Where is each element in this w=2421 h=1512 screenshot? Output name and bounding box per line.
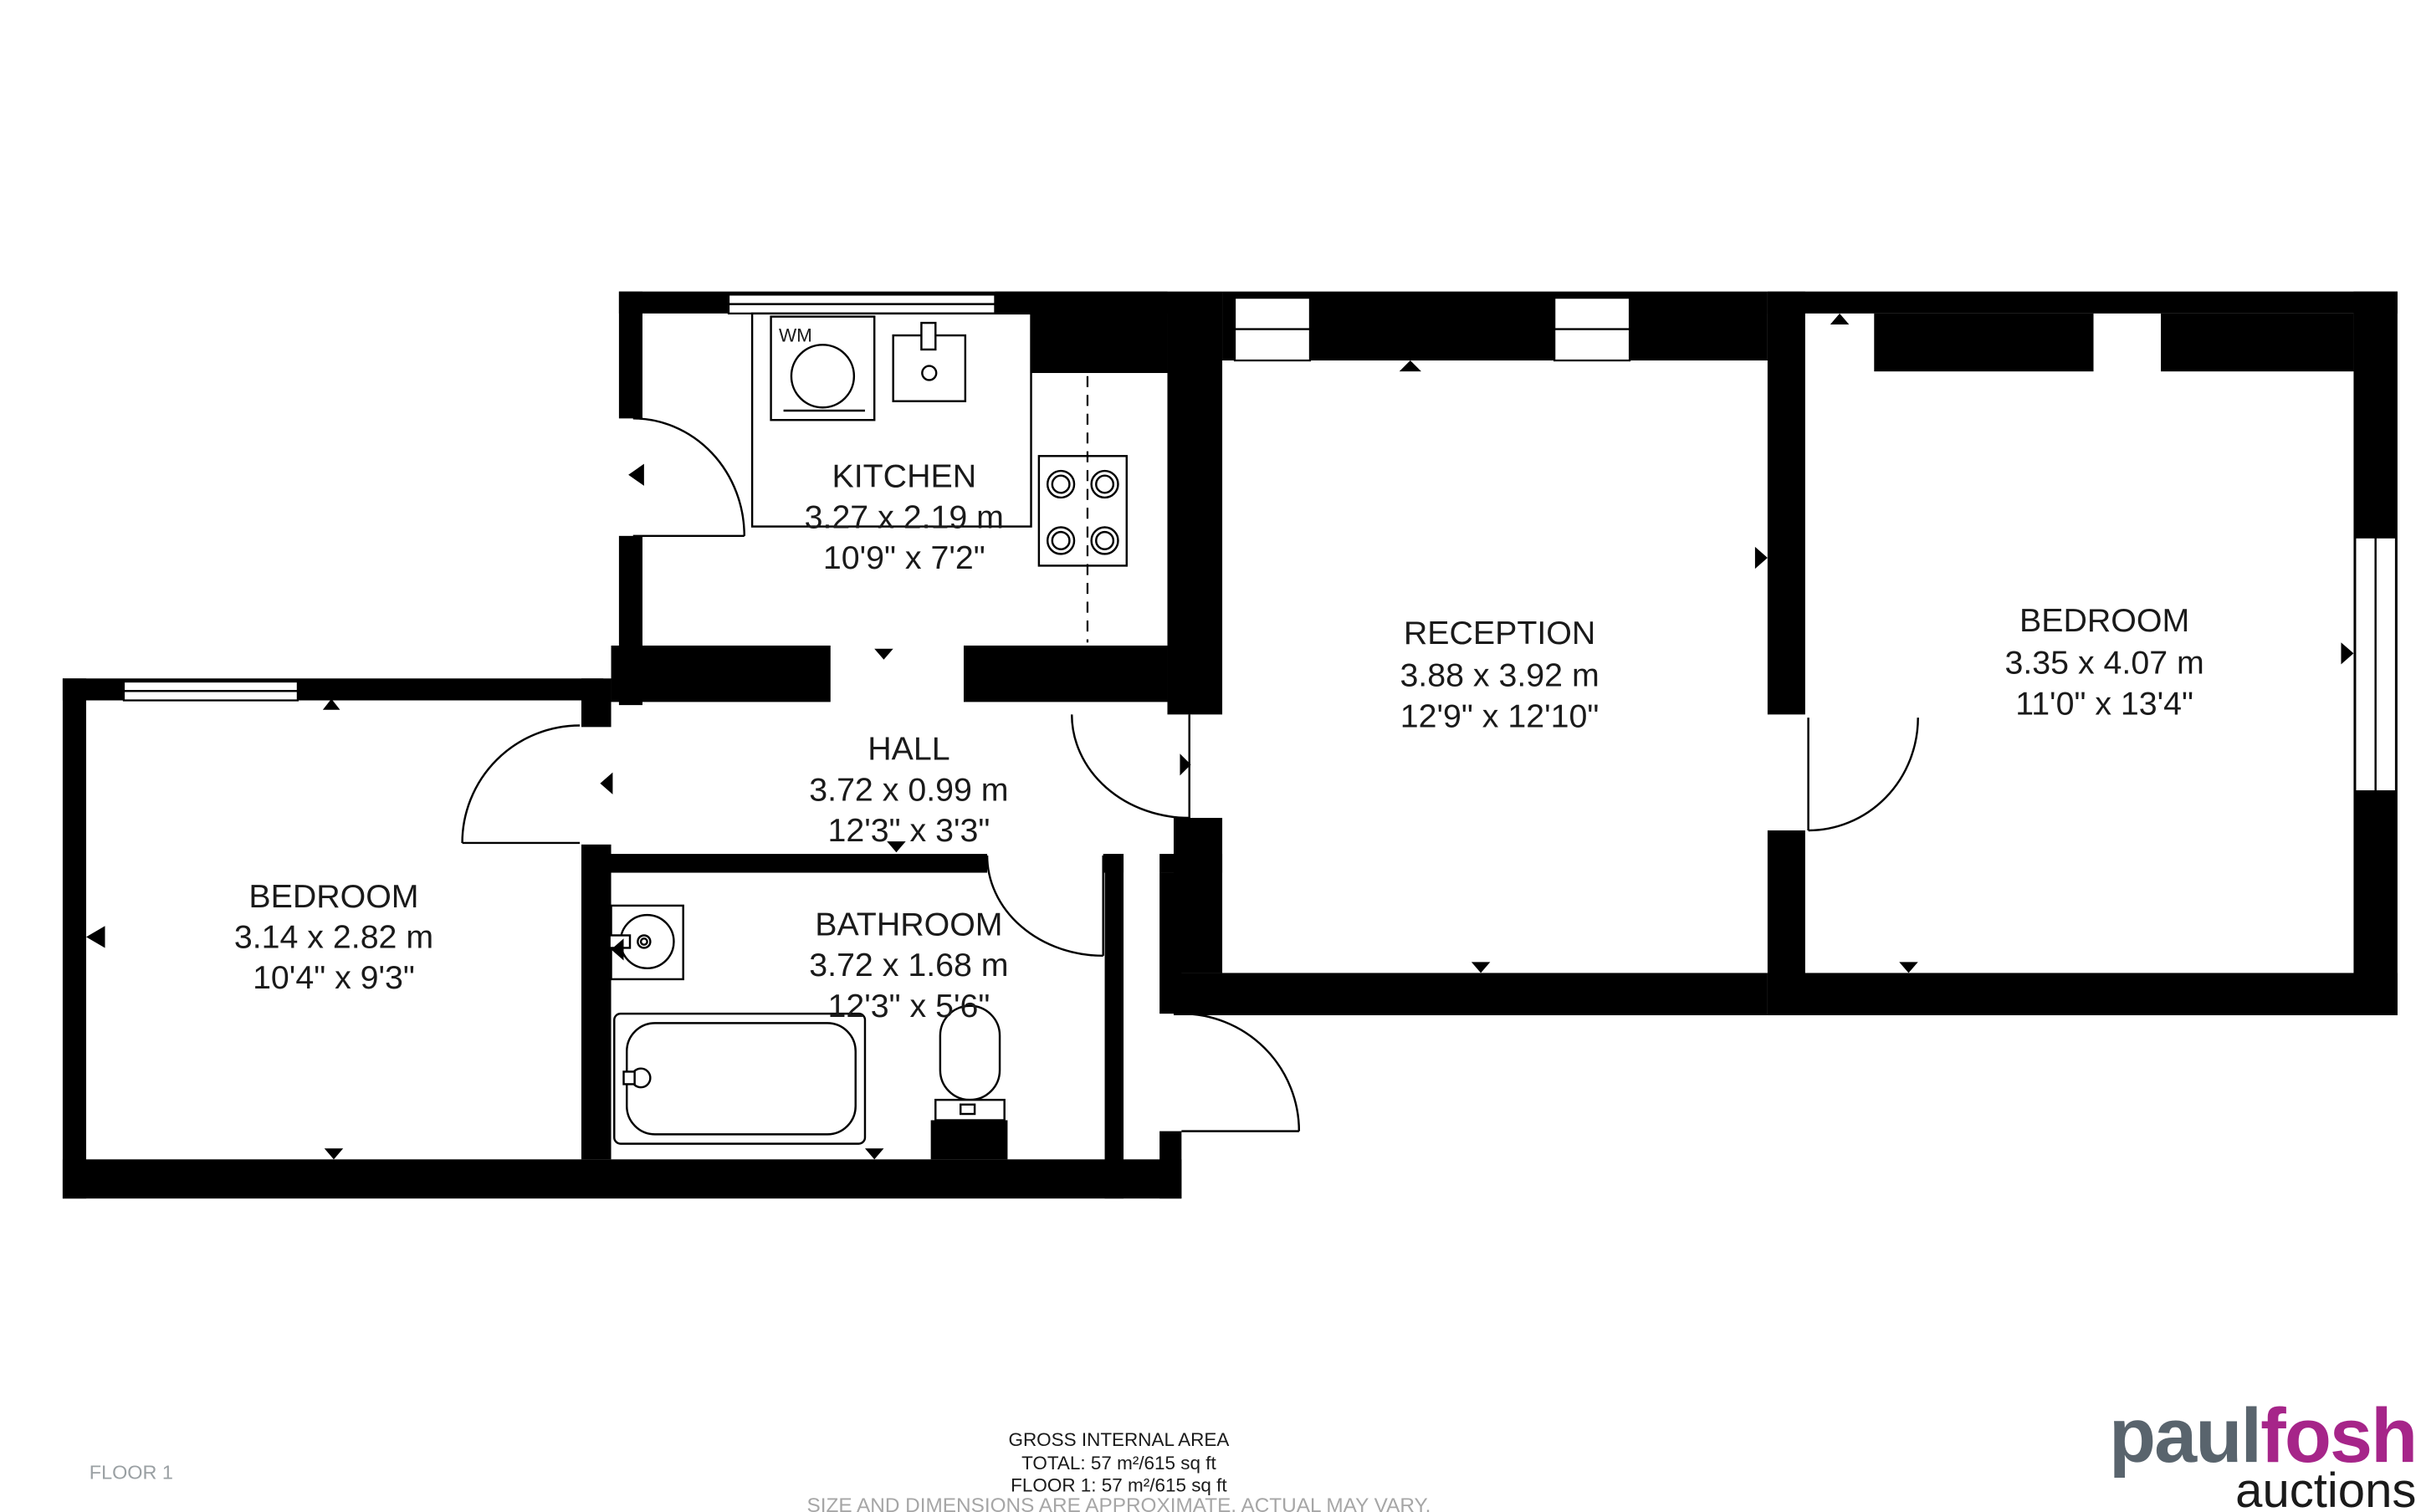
room-label-reception: RECEPTION 3.88 x 3.92 m 12'9" x 12'10" bbox=[1400, 615, 1599, 734]
arrow-left-icon bbox=[628, 464, 644, 486]
svg-text:3.72 x 1.68 m: 3.72 x 1.68 m bbox=[809, 947, 1008, 983]
bathroom-fixtures bbox=[610, 906, 1008, 1159]
svg-text:11'0" x 13'4": 11'0" x 13'4" bbox=[2015, 685, 2193, 722]
room-label-hall: HALL 3.72 x 0.99 m 12'3" x 3'3" bbox=[809, 731, 1008, 849]
arrow-right-icon bbox=[2341, 642, 2353, 664]
footer-area-summary: GROSS INTERNAL AREA TOTAL: 57 m²/615 sq … bbox=[806, 1429, 1431, 1512]
bathroom-door bbox=[987, 856, 1103, 956]
washing-machine: WM bbox=[771, 317, 875, 421]
svg-text:3.35 x 4.07 m: 3.35 x 4.07 m bbox=[2004, 645, 2203, 682]
entrance-door bbox=[1181, 1014, 1298, 1131]
reception-window-2 bbox=[1554, 298, 1630, 360]
svg-text:3.88 x 3.92 m: 3.88 x 3.92 m bbox=[1400, 657, 1599, 694]
room-label-bedroom-right: BEDROOM 3.35 x 4.07 m 11'0" x 13'4" bbox=[2004, 602, 2203, 722]
kitchen-door bbox=[633, 418, 745, 535]
arrow-left-icon bbox=[600, 773, 612, 794]
svg-text:BEDROOM: BEDROOM bbox=[2019, 602, 2189, 639]
room-label-bathroom: BATHROOM 3.72 x 1.68 m 12'3" x 5'6" bbox=[809, 906, 1008, 1024]
arrow-down-icon bbox=[865, 1148, 883, 1159]
svg-text:3.14 x 2.82 m: 3.14 x 2.82 m bbox=[234, 918, 433, 955]
arrow-down-icon bbox=[325, 1148, 343, 1159]
walls bbox=[63, 292, 2398, 1199]
arrow-left-icon bbox=[86, 926, 105, 948]
svg-text:BATHROOM: BATHROOM bbox=[815, 906, 1002, 942]
arrow-down-icon bbox=[874, 649, 893, 660]
floor-label: FLOOR 1 bbox=[90, 1461, 173, 1483]
bedroom-left-door bbox=[463, 725, 580, 842]
svg-text:10'9" x 7'2": 10'9" x 7'2" bbox=[823, 539, 985, 576]
floor-plan-svg: WM bbox=[0, 0, 2421, 1512]
arrow-up-icon bbox=[1400, 360, 1421, 371]
toilet bbox=[931, 1006, 1008, 1160]
bedroom-right-window bbox=[2355, 538, 2396, 791]
bathtub bbox=[614, 1014, 865, 1143]
arrow-down-icon bbox=[1472, 962, 1490, 973]
svg-text:HALL: HALL bbox=[868, 731, 949, 768]
room-label-bedroom-left: BEDROOM 3.14 x 2.82 m 10'4" x 9'3" bbox=[234, 878, 433, 996]
arrow-up-icon bbox=[1830, 314, 1849, 324]
hob bbox=[1039, 456, 1127, 565]
kitchen-sink bbox=[893, 323, 965, 401]
svg-text:BEDROOM: BEDROOM bbox=[248, 878, 418, 915]
bedroom-left-window bbox=[124, 682, 298, 700]
svg-text:RECEPTION: RECEPTION bbox=[1404, 615, 1595, 651]
logo-auctions: auctions bbox=[2235, 1463, 2416, 1512]
brand-logo: paulfosh auctions bbox=[2109, 1393, 2416, 1512]
disclaimer: SIZE AND DIMENSIONS ARE APPROXIMATE, ACT… bbox=[806, 1494, 1431, 1512]
arrow-down-icon bbox=[1899, 962, 1917, 973]
floorplan-page: WM bbox=[0, 0, 2421, 1512]
total-area: TOTAL: 57 m²/615 sq ft bbox=[1021, 1453, 1216, 1474]
kitchen-window bbox=[729, 294, 995, 313]
floor1-area: FLOOR 1: 57 m²/615 sq ft bbox=[1011, 1474, 1227, 1495]
svg-text:12'3" x 3'3": 12'3" x 3'3" bbox=[828, 812, 990, 849]
reception-window-1 bbox=[1235, 298, 1310, 360]
washing-machine-label: WM bbox=[779, 325, 812, 346]
svg-text:12'9" x 12'10": 12'9" x 12'10" bbox=[1400, 697, 1599, 734]
arrow-right-icon bbox=[1755, 547, 1768, 569]
svg-text:12'3" x 5'6": 12'3" x 5'6" bbox=[828, 988, 990, 1024]
gross-internal-area-title: GROSS INTERNAL AREA bbox=[1008, 1429, 1229, 1450]
room-label-kitchen: KITCHEN 3.27 x 2.19 m 10'9" x 7'2" bbox=[805, 458, 1004, 576]
svg-text:KITCHEN: KITCHEN bbox=[832, 458, 976, 495]
svg-text:3.27 x 2.19 m: 3.27 x 2.19 m bbox=[805, 498, 1004, 535]
bedroom-right-door bbox=[1809, 718, 1918, 830]
svg-text:10'4" x 9'3": 10'4" x 9'3" bbox=[253, 959, 415, 996]
hall-reception-door bbox=[1072, 714, 1189, 818]
svg-text:3.72 x 0.99 m: 3.72 x 0.99 m bbox=[809, 771, 1008, 808]
arrow-up-icon bbox=[323, 699, 340, 710]
